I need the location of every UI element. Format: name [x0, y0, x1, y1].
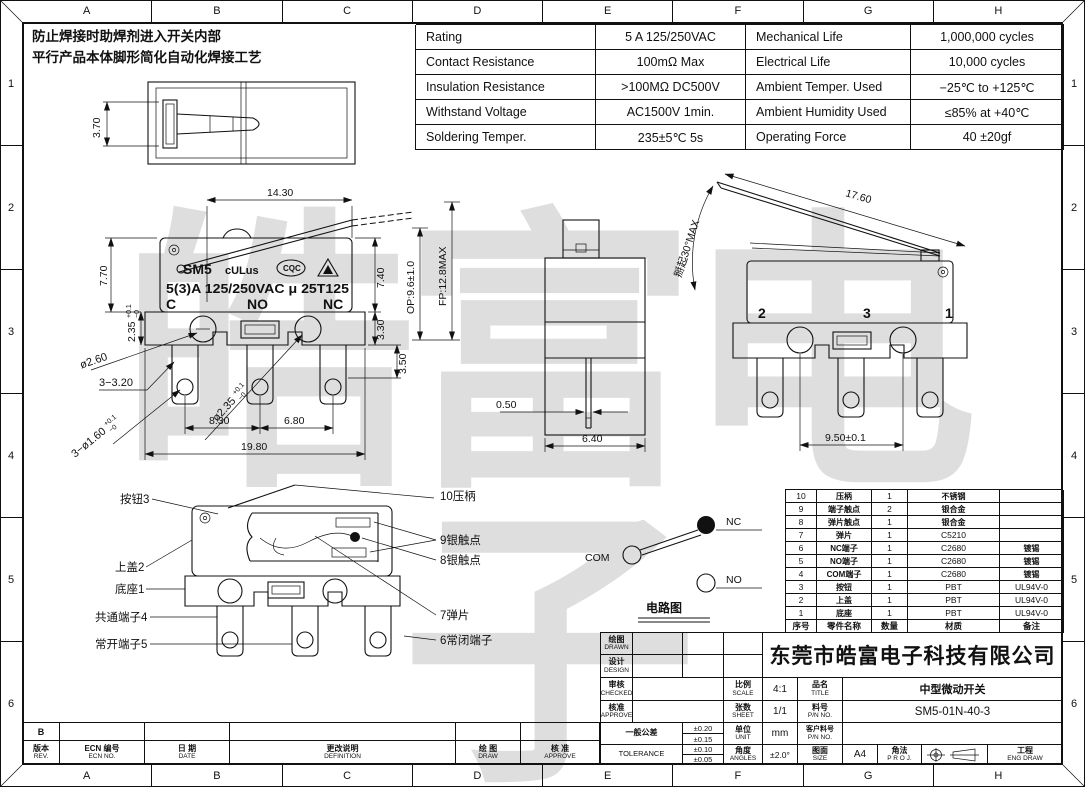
projection-label: 角法 — [892, 747, 908, 756]
tolerance-value: ±0.05 — [694, 755, 713, 764]
corner-diagonal — [1063, 765, 1085, 787]
tolerance-value: ±0.20 — [694, 724, 713, 733]
definition-header: 更改说明 — [327, 745, 359, 754]
bom-cell: PBT — [908, 594, 1000, 607]
label-base: 底座1 — [115, 582, 144, 596]
spec-key: Withstand Voltage — [416, 99, 596, 125]
bom-cell: 不锈钢 — [908, 490, 1000, 503]
grid-number: 3 — [1063, 270, 1085, 394]
dim-17.60: 17.60 — [844, 187, 873, 206]
bom-cell: 1 — [872, 607, 908, 620]
grid-number: 1 — [1063, 22, 1085, 146]
label-spring: 7弹片 — [440, 608, 469, 622]
dim-2.35: 2.35 — [126, 321, 138, 342]
draw-header: 绘 图 — [479, 745, 497, 754]
part-number: SM5-01N-40-3 — [915, 706, 990, 718]
bom-cell: C2680 — [908, 555, 1000, 568]
bom-cell: 1 — [872, 568, 908, 581]
tolerance-value: ±0.15 — [694, 735, 713, 744]
bom-cell: 1 — [872, 516, 908, 529]
bom-cell: 9 — [786, 503, 817, 516]
third-angle-projection-icon — [926, 747, 984, 763]
grid-letters-top: A B C D E F G H — [22, 0, 1063, 22]
bom-cell: 1 — [872, 555, 908, 568]
grid-letters-bottom: A B C D E F G H — [22, 765, 1063, 787]
pn-label: 料号 — [812, 704, 828, 713]
bom-cell: UL94V-0 — [1000, 594, 1064, 607]
unit-label: 单位 — [735, 726, 751, 735]
label-cover: 上盖2 — [115, 560, 144, 574]
bom-cell: 银合金 — [908, 503, 1000, 516]
bom-cell: 镀锡 — [1000, 542, 1064, 555]
size-value: A4 — [842, 744, 878, 765]
grid-letter: C — [283, 765, 413, 787]
ul-logo: cULus — [225, 265, 259, 277]
spec-key: Contact Resistance — [416, 49, 596, 75]
bom-cell: 2 — [872, 503, 908, 516]
approve-label: 核准 — [609, 704, 625, 713]
cqc-logo: CQC — [283, 264, 301, 273]
dim-rivet-dia: ø2.60 — [79, 351, 110, 372]
dim-19.80: 19.80 — [241, 441, 267, 453]
grid-numbers-right: 1 2 3 4 5 6 — [1063, 22, 1085, 765]
dim-fp: FP:12.8MAX — [437, 246, 449, 306]
tolerance-value: ±0.10 — [694, 745, 713, 754]
dim-slot: 3−3.20 — [99, 377, 133, 389]
view-front: 14.30 SM5 cULus CQC 5(3)A 125/250VAC μ 2… — [75, 182, 415, 482]
bom-cell: 1 — [872, 581, 908, 594]
bom-cell: 底座 — [817, 607, 872, 620]
bom-cell — [1000, 516, 1064, 529]
part-title: 中型微动开关 — [920, 681, 986, 697]
spec-key: Ambient Temper. Used — [746, 74, 911, 100]
terminal-1-label: 1 — [945, 305, 953, 321]
bom-cell: 10 — [786, 490, 817, 503]
dim-9.50: 9.50±0.1 — [825, 432, 866, 444]
spec-key: Soldering Temper. — [416, 124, 596, 150]
grid-letter: A — [22, 0, 152, 22]
terminal-2-label: 2 — [758, 305, 766, 321]
spec-key: Operating Force — [746, 124, 911, 150]
spec-val: 100mΩ Max — [596, 49, 746, 75]
svg-text:+0.1: +0.1 — [126, 304, 133, 318]
bom-cell: 1 — [872, 542, 908, 555]
dim-7.70: 7.70 — [98, 265, 110, 286]
dim-angle: 掰起30°MAX — [672, 218, 702, 278]
grid-letter: G — [804, 0, 934, 22]
terminal-3-label: 3 — [863, 305, 871, 321]
bom-cell: 5 — [786, 555, 817, 568]
bom-cell: PBT — [908, 607, 1000, 620]
scale-label: 比例 — [735, 681, 751, 690]
spec-key: Electrical Life — [746, 49, 911, 75]
checked-signature-cell — [632, 677, 724, 701]
spec-val: 5 A 125/250VAC — [596, 24, 746, 50]
date-header: 日 期 — [178, 745, 196, 754]
bom-cell — [1000, 529, 1064, 542]
label-blade-contact: 8银触点 — [440, 553, 481, 567]
spec-val: 40 ±20gf — [911, 124, 1064, 150]
spec-key: Rating — [416, 24, 596, 50]
corner-diagonal — [0, 0, 22, 22]
spec-key: Ambient Humidity Used — [746, 99, 911, 125]
spec-key: Mechanical Life — [746, 24, 911, 50]
design-label: 设计 — [609, 658, 625, 667]
rev-header: 版本 — [33, 745, 49, 754]
com-label: COM — [585, 552, 610, 564]
customer-pn-value — [842, 722, 1063, 745]
bom-cell: 1 — [872, 490, 908, 503]
view-side: OP:9.6±1.0 FP:12.8MAX 0.50 6.40 — [400, 180, 685, 465]
dim-op: OP:9.6±1.0 — [405, 261, 417, 314]
grid-letter: B — [152, 0, 282, 22]
terminal-nc-label: NC — [323, 296, 343, 312]
bom-cell: C5210 — [908, 529, 1000, 542]
spec-val: 1,000,000 cycles — [911, 24, 1064, 50]
grid-letter: D — [413, 765, 543, 787]
drawn-signature-cell — [632, 632, 683, 655]
grid-letter: A — [22, 765, 152, 787]
bom-cell: 3 — [786, 581, 817, 594]
drawing-sheet: 皓富电子 A B C D E F G H A B C D E F G H 1 2… — [0, 0, 1085, 787]
angles-label: 角度 — [735, 747, 751, 756]
bom-cell — [1000, 490, 1064, 503]
dim-pin-w: 0.50 — [496, 399, 517, 411]
spec-val: −25℃ to +125℃ — [911, 74, 1064, 100]
note-line: 平行产品本体脚形简化自动化焊接工艺 — [32, 48, 262, 69]
grid-letter: F — [673, 0, 803, 22]
bom-cell: 镀锡 — [1000, 555, 1064, 568]
unit-value: mm — [762, 722, 798, 745]
bom-cell: NO端子 — [817, 555, 872, 568]
company-name: 东莞市皓富电子科技有限公司 — [770, 640, 1056, 670]
bom-cell: 2 — [786, 594, 817, 607]
grid-letter: C — [283, 0, 413, 22]
grid-letter: G — [804, 765, 934, 787]
grid-number: 4 — [0, 394, 22, 518]
view-right: 17.60 掰起30°MAX 2 3 1 9.50±0.1 — [665, 168, 1005, 468]
bom-cell: PBT — [908, 581, 1000, 594]
dim-3.70: 3.70 — [91, 117, 103, 138]
approve-signature-cell — [632, 700, 724, 723]
grid-letter: F — [673, 765, 803, 787]
grid-number: 6 — [1063, 642, 1085, 765]
drawn-label: 绘图 — [609, 636, 625, 645]
grid-number: 2 — [1063, 146, 1085, 270]
eng-draw-label: 工程 — [1017, 747, 1033, 756]
tolerance-label-cn: 一般公差 — [626, 729, 658, 738]
grid-letter: H — [934, 0, 1063, 22]
dim-7.40: 7.40 — [375, 267, 387, 288]
grid-number: 2 — [0, 146, 22, 270]
no-label: NO — [726, 574, 742, 586]
bom-cell: 弹片触点 — [817, 516, 872, 529]
circuit-diagram: COM NC NO 电路图 — [580, 495, 780, 630]
bom-cell: 压柄 — [817, 490, 872, 503]
bom-table: 10压柄1不锈钢 9端子触点2银合金 8弹片触点1银合金 7弹片1C5210 6… — [785, 489, 1063, 632]
bom-cell: UL94V-0 — [1000, 581, 1064, 594]
title-label: 品名 — [812, 681, 828, 690]
customer-pn-label: 客户料号 — [806, 726, 834, 734]
angles-value: ±2.0° — [770, 750, 790, 760]
bom-cell: 弹片 — [817, 529, 872, 542]
grid-letter: E — [543, 0, 673, 22]
nc-label: NC — [726, 516, 742, 528]
bom-cell: 银合金 — [908, 516, 1000, 529]
grid-number: 4 — [1063, 394, 1085, 518]
bom-cell: C2680 — [908, 542, 1000, 555]
bom-cell: 按钮 — [817, 581, 872, 594]
bom-cell: 8 — [786, 516, 817, 529]
spec-table: Rating5 A 125/250VACMechanical Life1,000… — [415, 25, 1063, 150]
spec-key: Insulation Resistance — [416, 74, 596, 100]
dim-body-w: 6.40 — [582, 433, 603, 445]
corner-diagonal — [1063, 0, 1085, 22]
grid-number: 5 — [0, 518, 22, 642]
nc-contact — [697, 516, 715, 534]
grid-letter: E — [543, 765, 673, 787]
spec-val: >100MΩ DC500V — [596, 74, 746, 100]
bom-cell: UL94V-0 — [1000, 607, 1064, 620]
label-no-terminal: 常开端子5 — [95, 638, 147, 651]
bom-cell: NC端子 — [817, 542, 872, 555]
corner-diagonal — [0, 765, 22, 787]
terminal-no-label: NO — [247, 296, 268, 312]
label-common-terminal: 共通端子4 — [95, 611, 148, 624]
bom-cell — [1000, 503, 1064, 516]
label-nc-terminal: 6常闭端子 — [440, 634, 492, 647]
brand-marking: SM5 — [183, 261, 212, 277]
scale-value: 4:1 — [762, 677, 798, 701]
label-terminal-contacts: 9银触点 — [440, 533, 481, 547]
terminal-c-label: C — [166, 296, 176, 312]
ecn-header: ECN 编号 — [84, 745, 119, 754]
grid-number: 5 — [1063, 518, 1085, 642]
svg-text:−0: −0 — [134, 310, 141, 318]
design-signature-cell — [632, 654, 683, 678]
view-internal: 按钮3 上盖2 底座1 共通端子4 常开端子5 10压柄 9银触点 8银触点 7… — [90, 478, 520, 668]
grid-numbers-left: 1 2 3 4 5 6 — [0, 22, 22, 765]
bom-cell: COM端子 — [817, 568, 872, 581]
label-lever: 10压柄 — [440, 490, 476, 503]
dim-8.30: 8.30 — [209, 415, 230, 427]
spec-val: 10,000 cycles — [911, 49, 1064, 75]
size-label: 图面 — [812, 747, 828, 756]
grid-letter: H — [934, 765, 1063, 787]
bom-cell: 6 — [786, 542, 817, 555]
revision-strip: B 版本REV. ECN 编号ECN NO. 日 期DATE 更改说明DEFIN… — [22, 722, 600, 765]
sheet-value: 1/1 — [762, 700, 798, 723]
bom-cell: 上盖 — [817, 594, 872, 607]
view-top: 3.70 — [85, 72, 405, 172]
revision-value: B — [38, 727, 45, 737]
dim-6.80: 6.80 — [284, 415, 305, 427]
grid-number: 6 — [0, 642, 22, 765]
note-line: 防止焊接时助焊剂进入开关内部 — [32, 27, 262, 48]
dim-hole-dia: 3−ø1.60 — [69, 425, 108, 460]
dim-14.30: 14.30 — [267, 187, 293, 199]
spec-val: ≤85% at +40℃ — [911, 99, 1064, 125]
grid-number: 1 — [0, 22, 22, 146]
bom-cell: 1 — [872, 529, 908, 542]
checked-label: 审核 — [609, 681, 625, 690]
sheet-label: 张数 — [735, 704, 751, 713]
projection-symbol-cell — [921, 744, 988, 765]
dim-3.30: 3.30 — [375, 319, 387, 340]
no-contact — [697, 574, 715, 592]
bom-cell: 4 — [786, 568, 817, 581]
spec-val: AC1500V 1min. — [596, 99, 746, 125]
bom-cell: 7 — [786, 529, 817, 542]
bom-cell: 镀锡 — [1000, 568, 1064, 581]
bom-cell: 1 — [786, 607, 817, 620]
bom-cell: 端子触点 — [817, 503, 872, 516]
bom-cell: C2680 — [908, 568, 1000, 581]
rating-marking: 5(3)A 125/250VAC μ 25T125 — [166, 282, 349, 296]
bom-cell: 1 — [872, 594, 908, 607]
circuit-caption: 电路图 — [646, 600, 682, 615]
approve-header: 核 准 — [551, 745, 569, 754]
label-button: 按钮3 — [120, 492, 149, 506]
spec-val: 235±5℃ 5s — [596, 124, 746, 150]
grid-letter: D — [413, 0, 543, 22]
tolerance-label-en: TOLERANCE — [619, 750, 665, 758]
grid-letter: B — [152, 765, 282, 787]
process-notes: 防止焊接时助焊剂进入开关内部 平行产品本体脚形简化自动化焊接工艺 — [32, 27, 262, 69]
title-block: 绘图DRAWN 设计DESIGN 东莞市皓富电子科技有限公司 审核CHECKED… — [600, 632, 1063, 765]
grid-number: 3 — [0, 270, 22, 394]
